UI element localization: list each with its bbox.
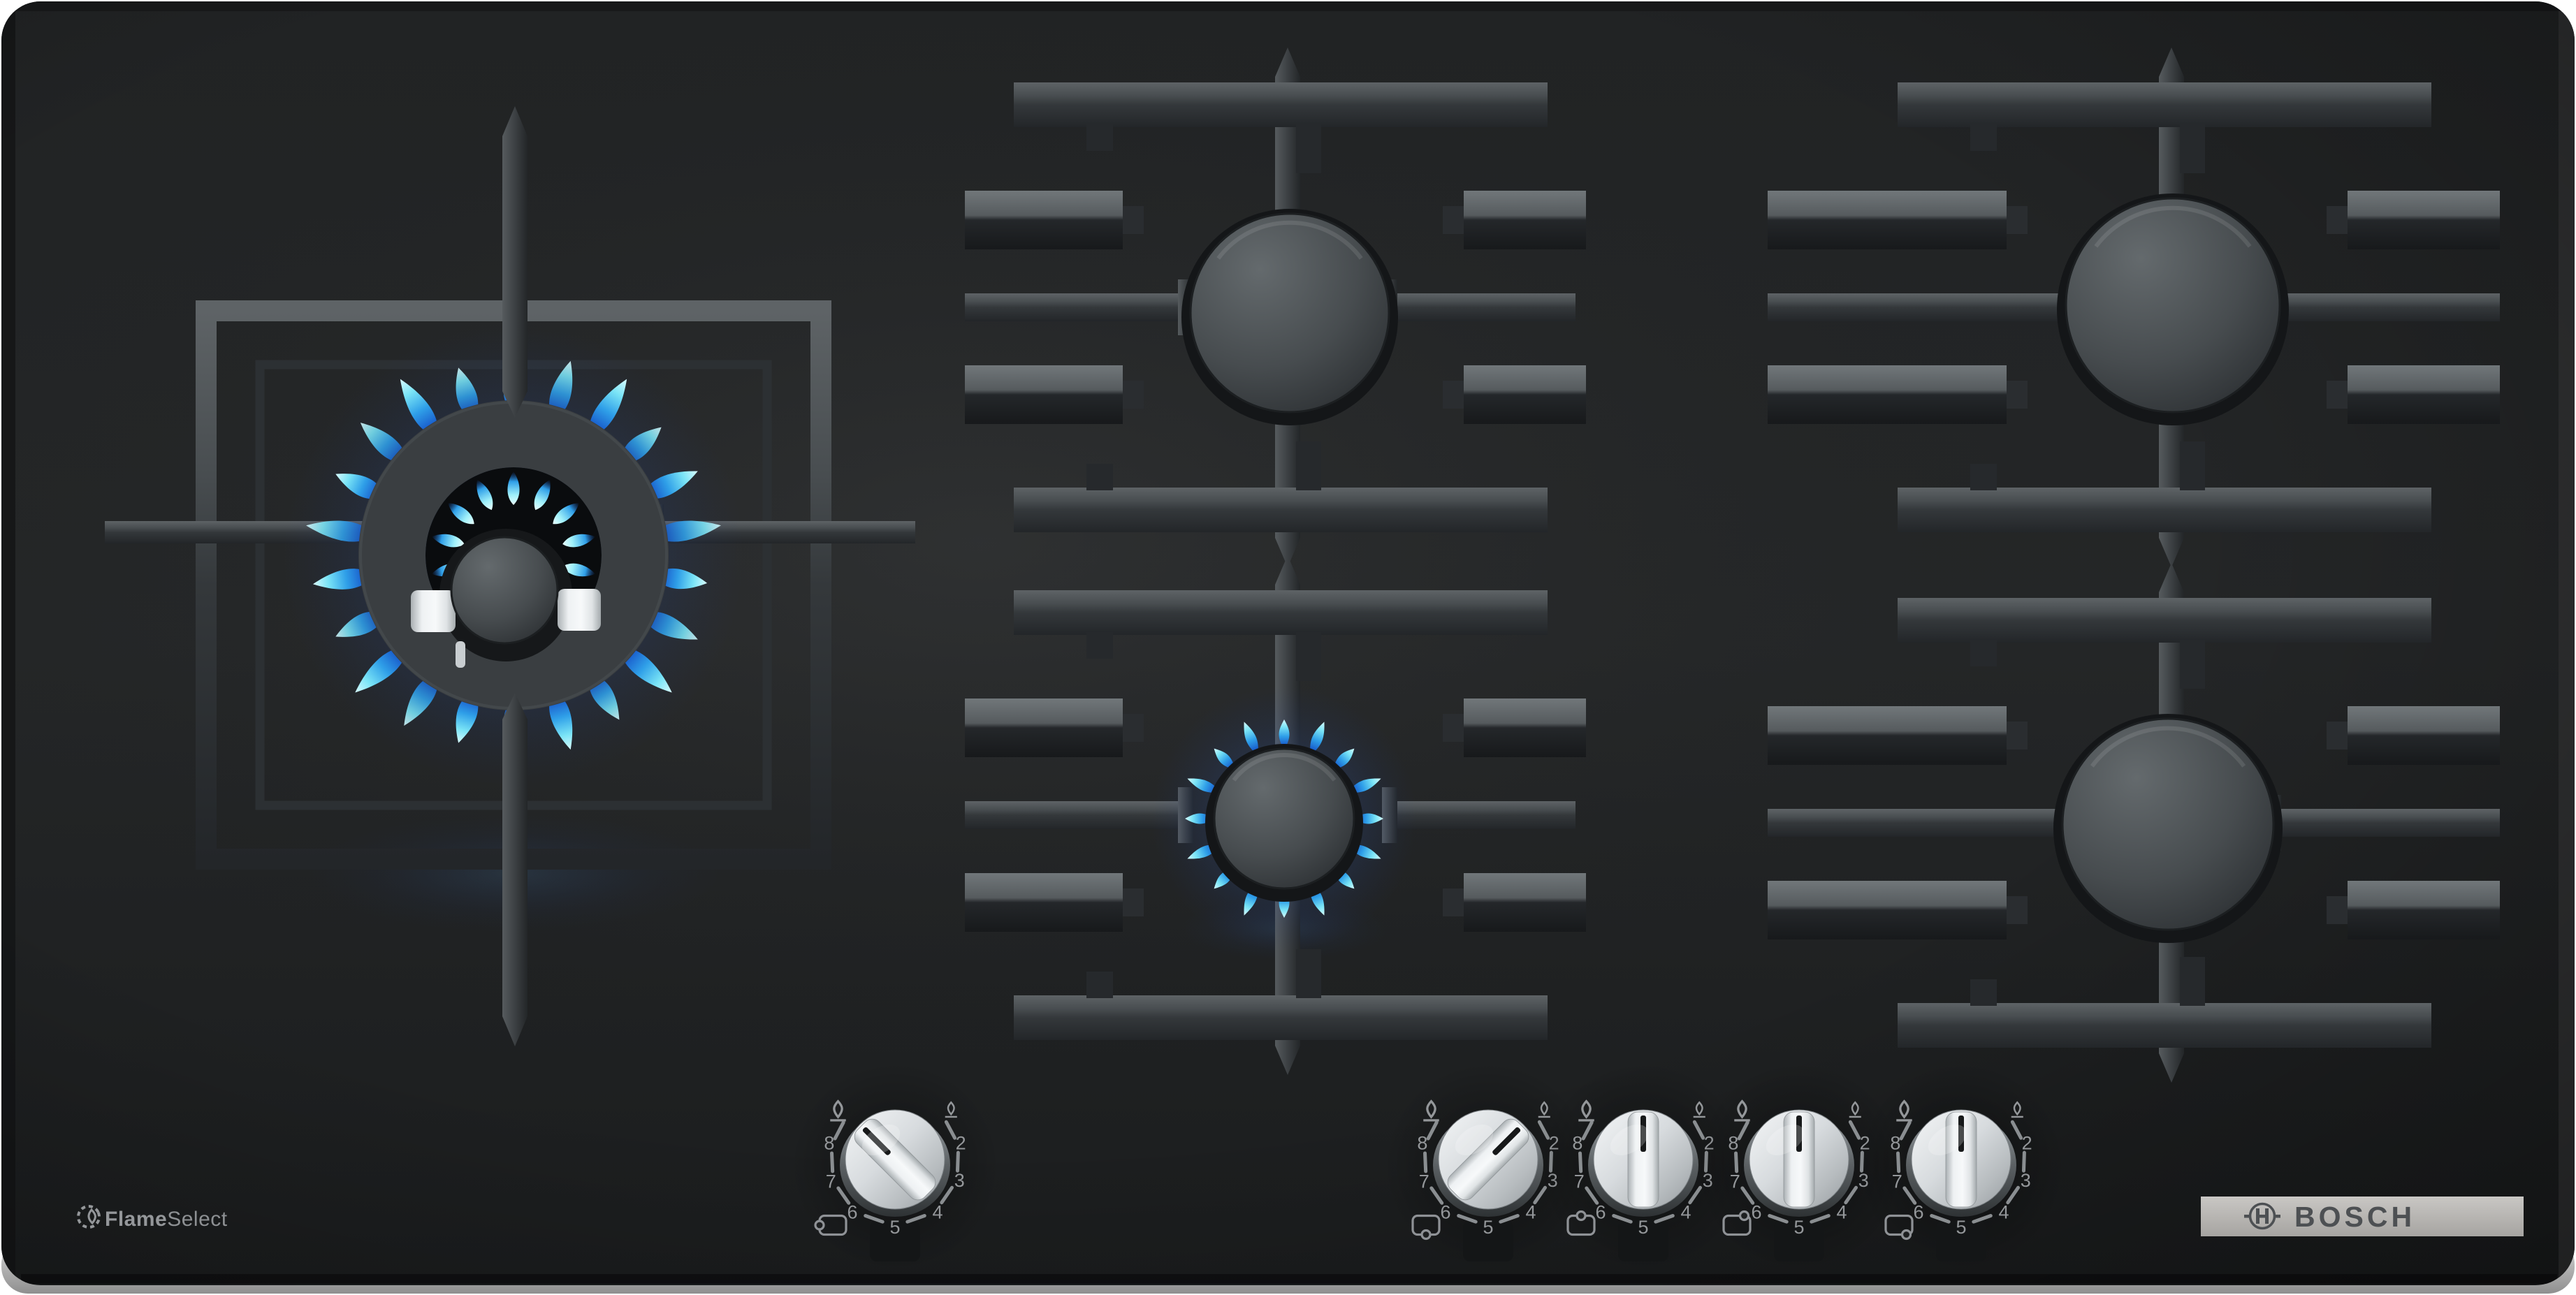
burner-front-right [2053,714,2283,943]
knob-scale-number: 4 [1526,1201,1536,1222]
wok-grate-finger-top [502,106,527,418]
grate-rail-tab [1970,464,1997,490]
grate-rail [1014,590,1548,635]
grate-rail-tab [1086,632,1113,659]
burner-cap [2066,198,2280,412]
knob-scale-number: 8 [824,1133,834,1154]
dial-tick [1580,1153,1581,1171]
grate-comb-block-right [2348,191,2500,249]
grate-rail-tab [1970,124,1997,151]
grate-rail-tab [1086,124,1113,151]
bosch-wordmark: BOSCH [2294,1201,2415,1233]
grate-arm-left [1768,293,2062,321]
grate-comb-block-left [965,365,1123,424]
grate-comb-tab [1123,206,1144,234]
grate-rail-tab [1970,640,1997,666]
grate-rail [1014,995,1548,1040]
grate-comb-block-left [1768,365,2007,424]
grate-comb-block-left [1768,881,2007,939]
grate-rail-tab [1086,972,1113,998]
burner-cap [1191,214,1389,412]
grate-comb-tab [1443,888,1464,916]
knob-scale-number: 8 [1728,1133,1738,1154]
grate-comb-block-left [1768,191,2007,249]
knob-scale-number: 4 [1681,1201,1691,1222]
wok-burner-metal-left [411,590,456,632]
grate-comb-tab [1123,381,1144,409]
knob-scale-number: 4 [1837,1201,1847,1222]
grate-comb-tab [2007,206,2028,234]
burner-cap [1214,749,1354,888]
dial-tick [1736,1153,1737,1171]
flameselect-text: FlameSelect [105,1208,228,1231]
dial-tick [1898,1153,1899,1171]
knob-scale-number: 5 [1483,1217,1493,1238]
grate-rail [1014,488,1548,532]
grate-comb-tab [2327,206,2348,234]
grate-comb-tab [2007,722,2028,749]
knob-scale-number: 5 [889,1217,900,1238]
grate-comb-block-right [1464,873,1586,932]
knob-scale-number: 4 [933,1201,943,1222]
burner-cap [2062,719,2273,930]
knob-scale-number: 4 [1999,1201,2009,1222]
grate-rail [1014,82,1548,127]
grate-comb-tab [1123,888,1144,916]
grate-comb-block-right [1464,191,1586,249]
wok-burner-cap [451,537,558,643]
product-photo-gas-hob: 87654328765432876543287654328765432 Flam… [0,0,2576,1295]
knob-scale-number: 2 [956,1133,966,1154]
grate-arm-right [1397,293,1576,321]
grate-rail-tab [1970,979,1997,1006]
grate-rail-tab [1086,464,1113,490]
grate-comb-block-left [965,191,1123,249]
knob-scale-number: 2 [2022,1133,2032,1154]
knob-scale-number: 8 [1572,1133,1582,1154]
knob-scale-number: 7 [1892,1171,1902,1192]
dial-tick [1425,1153,1426,1171]
grate-arm-left [965,801,1178,829]
knob-scale-number: 6 [847,1201,857,1222]
grate-comb-tab [2007,381,2028,409]
knob-scale-number: 8 [1417,1133,1427,1154]
grate-rail-tab [2180,124,2205,173]
grate-comb-block-right [2348,706,2500,765]
grate-comb-tab [1443,381,1464,409]
grate-comb-block-left [1768,706,2007,765]
wok-grate-finger-bottom [502,693,527,1046]
knob-scale-number: 7 [826,1171,836,1192]
grate-rail-tab [1296,632,1321,681]
knob-scale-number: 3 [954,1170,965,1191]
grate-arm-right [1397,801,1576,829]
grate-comb-block-right [2348,365,2500,424]
grate-rail-tab [2180,957,2205,1006]
grate-comb-tab [2007,896,2028,924]
knob-scale-number: 5 [1638,1217,1648,1238]
grate-comb-tab [1443,714,1464,742]
knob-front-right[interactable]: 8765432 [1856,1062,2066,1271]
knob-scale-number: 6 [1595,1201,1606,1222]
grate-comb-block-left [965,698,1123,757]
grate-comb-block-right [2348,881,2500,939]
knob-scale-number: 7 [1419,1171,1429,1192]
knob-left-wok[interactable]: 8765432 [790,1062,1000,1271]
knob-scale-number: 3 [2021,1170,2031,1191]
knob-scale-number: 5 [1956,1217,1966,1238]
grate-comb-tab [1123,714,1144,742]
grate-comb-tab [2327,722,2348,749]
grate-rail-tab [1296,441,1321,490]
grate-comb-block-right [1464,365,1586,424]
knob-scale-number: 7 [1730,1171,1740,1192]
grate-rail [1898,598,2431,643]
knob-scale-number: 8 [1890,1133,1900,1154]
grate-comb-block-left [965,873,1123,932]
grate-rail-tab [1296,124,1321,173]
grate-rail-tab [1296,949,1321,998]
dial-tick [957,1153,958,1171]
grate-arm-left [1768,809,2062,837]
knob-scale-number: 6 [1913,1201,1923,1222]
grate-comb-tab [2327,896,2348,924]
bosch-badge: BOSCH [2201,1197,2524,1236]
dial-tick [832,1153,833,1171]
burner-rear-center [1181,209,1398,425]
grate-rail-tab [2180,441,2205,490]
grate-rail [1898,488,2431,532]
burner-rear-right [2057,193,2289,425]
knob-scale-number: 7 [1574,1171,1585,1192]
knob-scale-number: 5 [1793,1217,1804,1238]
grate-rail [1898,82,2431,127]
grate-comb-tab [2327,381,2348,409]
knob-scale-number: 6 [1751,1201,1761,1222]
burner-front-center [1151,686,1417,951]
grate-comb-block-right [1464,698,1586,757]
hob-scene: 87654328765432876543287654328765432 Flam… [0,0,2576,1295]
knob-scale-number: 6 [1440,1201,1450,1222]
grate-rail [1898,1003,2431,1048]
wok-burner-metal-right [558,589,601,631]
wok-ignition-pin [456,641,465,668]
grate-arm-left [965,293,1178,321]
grate-arm-right [2281,809,2500,837]
grate-comb-tab [1443,206,1464,234]
grate-rail-tab [2180,640,2205,689]
grate-arm-right [2281,293,2500,321]
dial-tick [2023,1153,2024,1171]
